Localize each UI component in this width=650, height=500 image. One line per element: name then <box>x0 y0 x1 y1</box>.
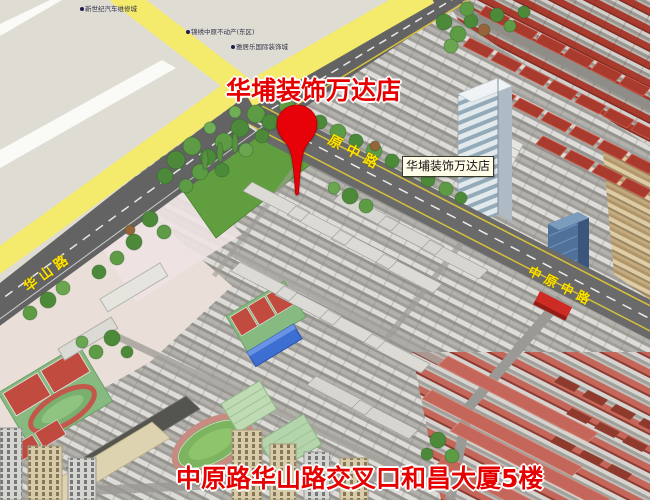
poi-label: 雅居乐国际装饰城 <box>231 41 288 51</box>
poi-label: 锦绣中原不动产(东区) <box>186 26 255 36</box>
poi-label: 新世纪汽车维修城 <box>80 3 137 13</box>
address-caption: 中原路华山路交叉口和昌大厦5楼 <box>176 459 543 495</box>
poi-dot-icon <box>80 7 84 11</box>
store-label-box[interactable]: 华埔装饰万达店 <box>402 156 494 177</box>
poi-dot-icon <box>186 30 190 34</box>
poi-dot-icon <box>231 45 235 49</box>
location-pin-icon[interactable] <box>276 104 318 198</box>
map-screenshot: 华山路 原中路 中原中路 新世纪汽车维修城 锦绣中原不动产(东区) 雅居乐国际装… <box>0 0 650 500</box>
page-title: 华埔装饰万达店 <box>226 71 401 107</box>
